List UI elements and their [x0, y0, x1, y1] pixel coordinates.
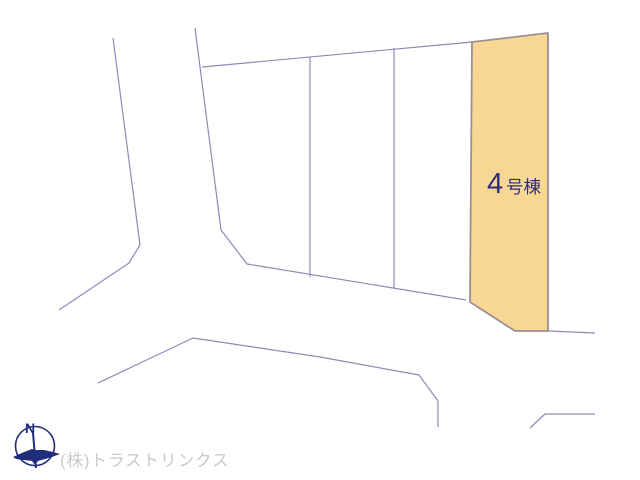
parcel-4-label-number: 4: [487, 168, 503, 200]
parcel-block-top-boundary: [202, 42, 472, 67]
road-edge-lower: [98, 338, 438, 427]
parcel-4-label-suffix: 号棟: [506, 177, 541, 197]
company-credit-text: (株)トラストリンクス: [60, 451, 230, 470]
site-plan-image: 4 号棟 N (株)トラストリンクス: [0, 0, 640, 480]
boundary-segment-right: [548, 331, 595, 333]
north-compass: N: [13, 420, 60, 468]
road-edge-lower-right: [530, 414, 595, 428]
road-edge-left-west: [59, 38, 140, 310]
road-edge-left-east: [195, 28, 466, 300]
site-plan-map: 4 号棟 N (株)トラストリンクス: [0, 0, 640, 480]
